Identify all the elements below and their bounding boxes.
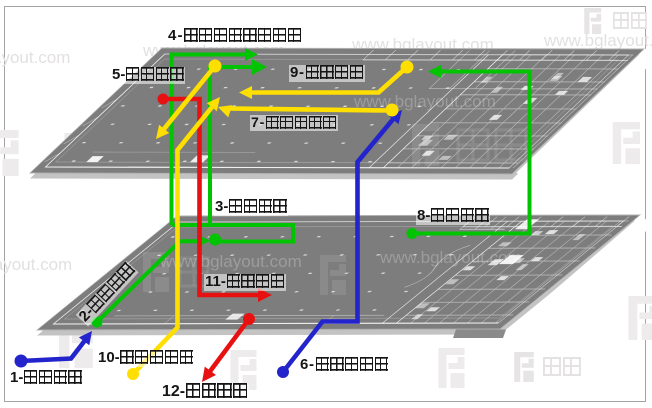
svg-text:www.bglayout.com: www.bglayout.com	[379, 248, 522, 267]
